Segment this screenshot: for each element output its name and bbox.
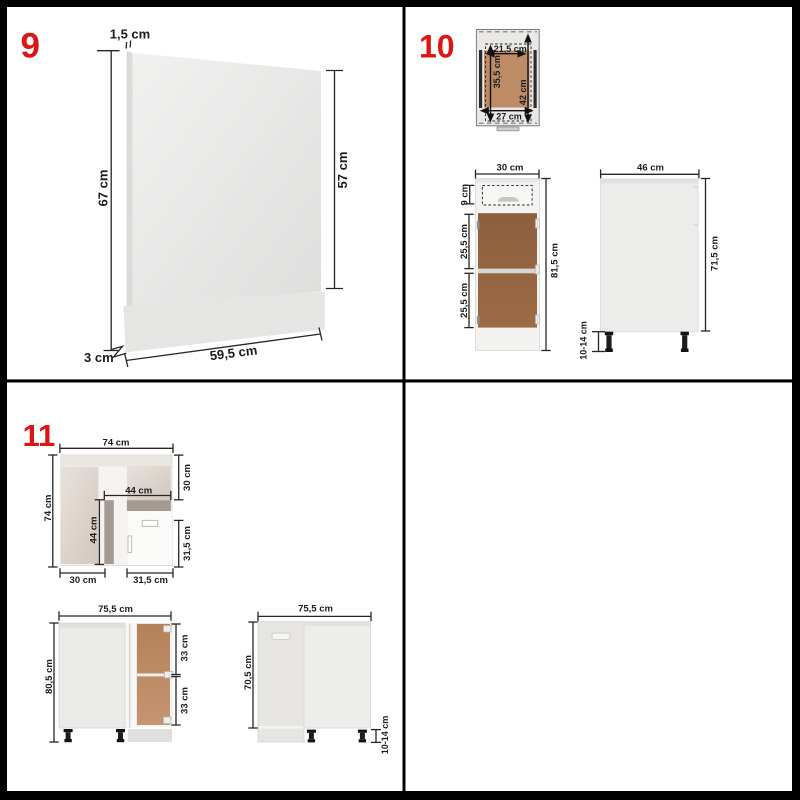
svg-text:75,5 cm: 75,5 cm bbox=[298, 604, 333, 615]
svg-text:44 cm: 44 cm bbox=[89, 517, 100, 544]
svg-text:35,5 cm: 35,5 cm bbox=[492, 55, 502, 88]
svg-text:46 cm: 46 cm bbox=[637, 162, 664, 173]
svg-text:30 cm: 30 cm bbox=[182, 464, 193, 491]
svg-text:10: 10 bbox=[419, 29, 455, 65]
svg-text:71,5 cm: 71,5 cm bbox=[710, 236, 721, 271]
svg-text:74 cm: 74 cm bbox=[103, 438, 130, 449]
svg-text:25,5 cm: 25,5 cm bbox=[459, 224, 470, 259]
svg-text:3 cm: 3 cm bbox=[84, 350, 114, 365]
svg-text:21,5 cm: 21,5 cm bbox=[494, 44, 527, 54]
svg-text:74 cm: 74 cm bbox=[43, 495, 54, 522]
svg-text:30 cm: 30 cm bbox=[497, 163, 524, 174]
svg-text:10-14 cm: 10-14 cm bbox=[380, 716, 390, 755]
svg-text:70,5 cm: 70,5 cm bbox=[243, 655, 254, 690]
svg-text:27 cm: 27 cm bbox=[496, 111, 522, 121]
svg-text:9: 9 bbox=[21, 27, 40, 66]
svg-text:30 cm: 30 cm bbox=[70, 575, 97, 586]
svg-text:31,5 cm: 31,5 cm bbox=[182, 526, 193, 561]
svg-text:10-14 cm: 10-14 cm bbox=[579, 321, 589, 360]
svg-text:80,5 cm: 80,5 cm bbox=[44, 659, 55, 694]
svg-text:25,5 cm: 25,5 cm bbox=[459, 283, 470, 318]
svg-text:1,5 cm: 1,5 cm bbox=[110, 27, 150, 42]
svg-text:67 cm: 67 cm bbox=[96, 170, 111, 207]
svg-text:57 cm: 57 cm bbox=[335, 152, 350, 189]
svg-text:11: 11 bbox=[23, 418, 56, 453]
svg-text:31,5 cm: 31,5 cm bbox=[133, 575, 168, 586]
svg-text:81,5 cm: 81,5 cm bbox=[550, 243, 561, 278]
svg-text:42 cm: 42 cm bbox=[518, 80, 528, 106]
svg-text:33 cm: 33 cm bbox=[180, 635, 191, 662]
svg-text:75,5 cm: 75,5 cm bbox=[98, 604, 133, 615]
svg-text:33 cm: 33 cm bbox=[180, 687, 191, 714]
svg-text:9 cm: 9 cm bbox=[459, 184, 470, 206]
